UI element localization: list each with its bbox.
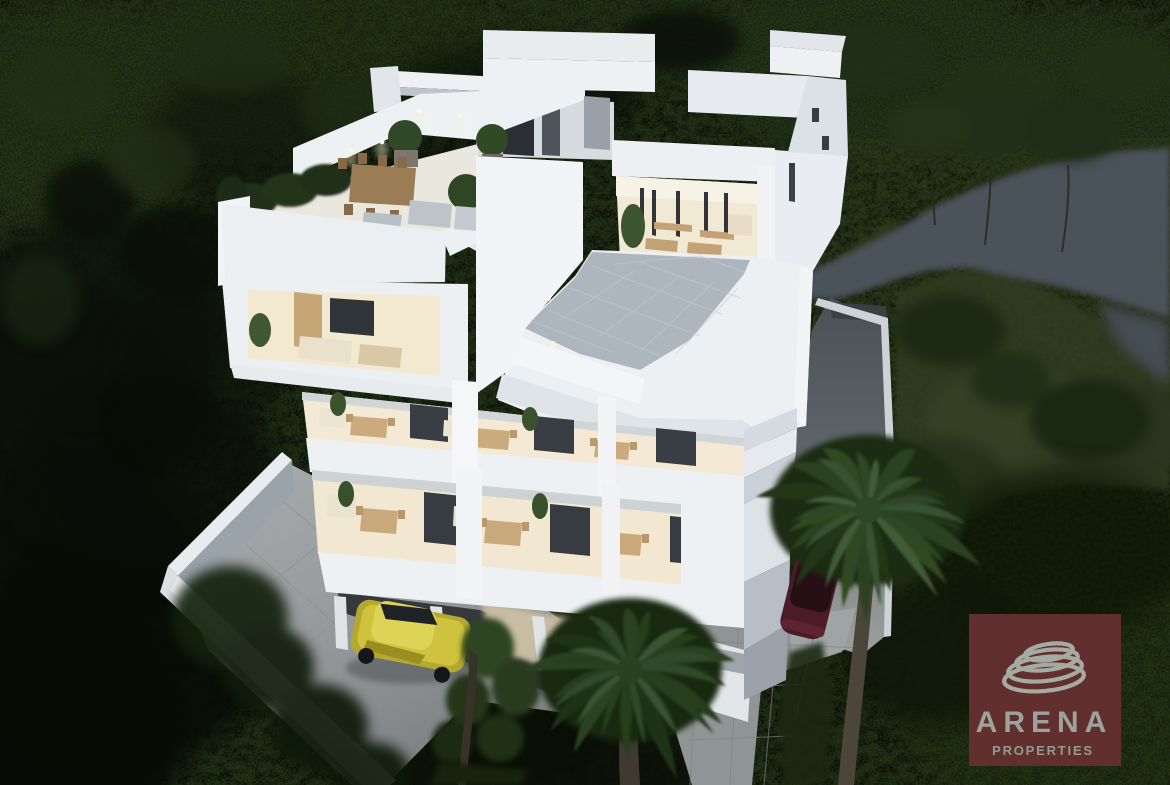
svg-text:PROPERTIES: PROPERTIES xyxy=(992,743,1094,758)
svg-text:ARENA: ARENA xyxy=(976,706,1113,739)
